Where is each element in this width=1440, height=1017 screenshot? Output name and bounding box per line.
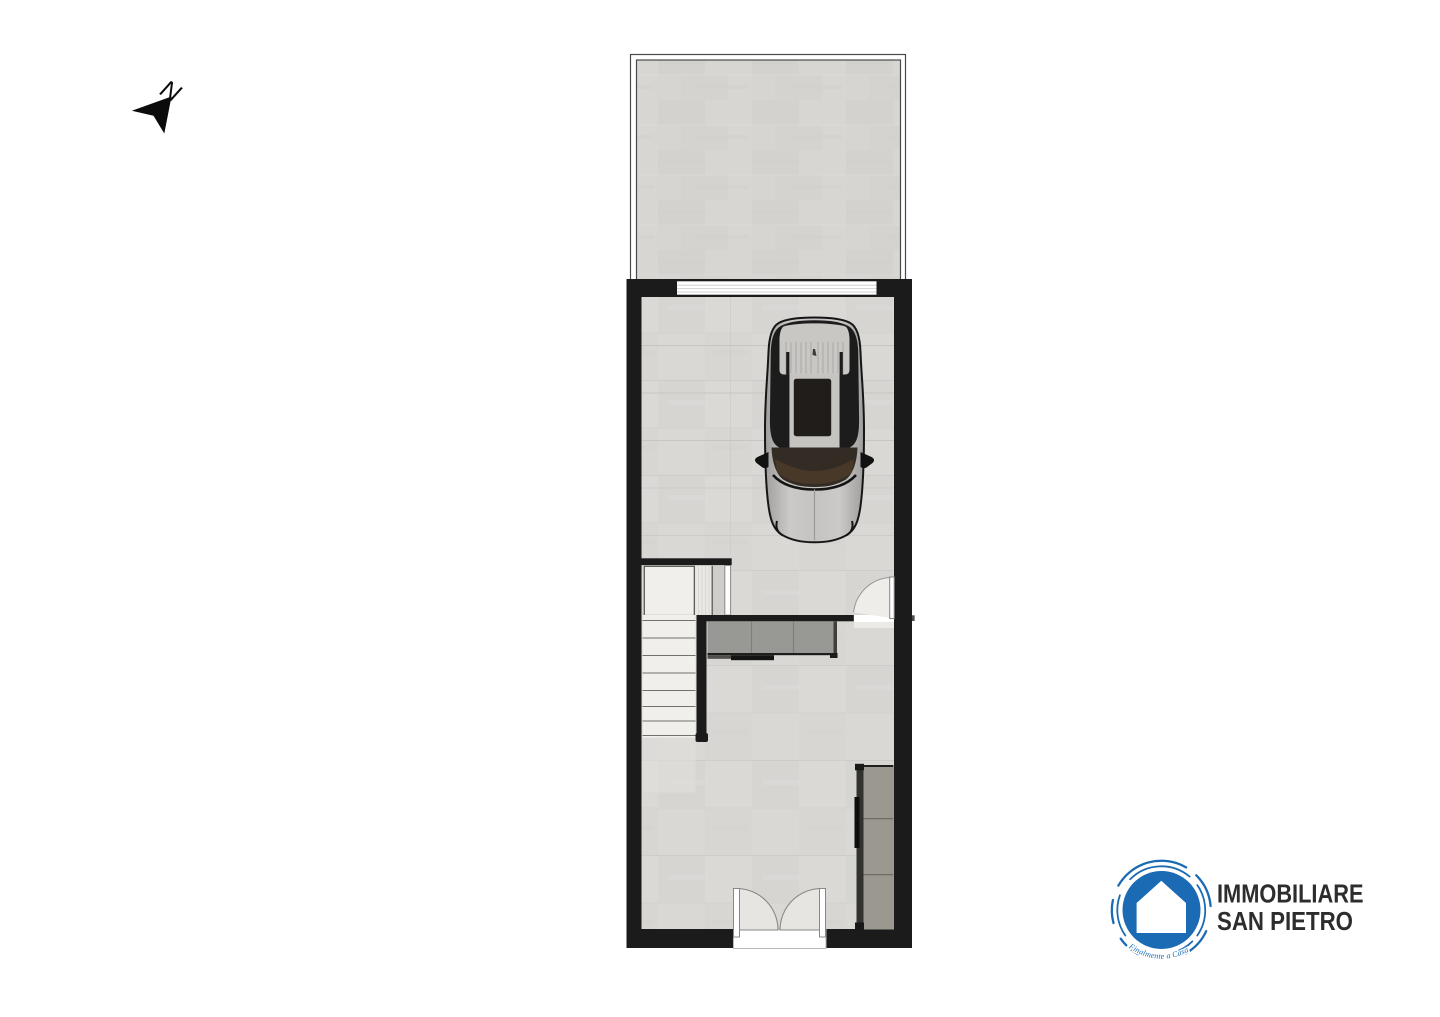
svg-text:SAN PIETRO: SAN PIETRO	[1217, 908, 1353, 936]
svg-text:IMMOBILIARE: IMMOBILIARE	[1217, 881, 1364, 909]
